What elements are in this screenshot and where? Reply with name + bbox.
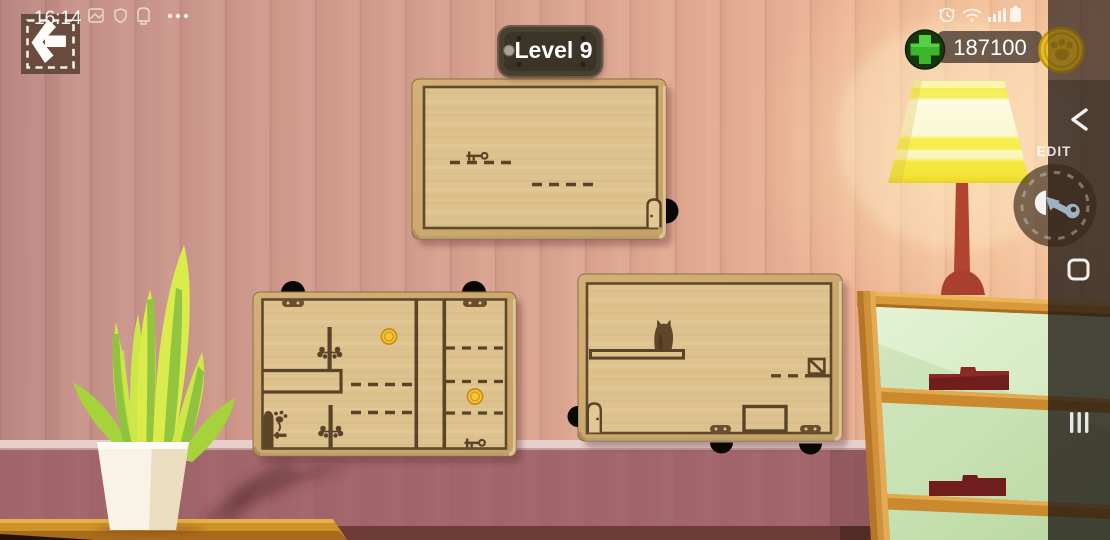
svg-text:16:14: 16:14 bbox=[34, 8, 82, 29]
svg-text:EDIT: EDIT bbox=[1037, 144, 1072, 159]
svg-text:187100: 187100 bbox=[953, 35, 1026, 60]
svg-text:Level 9: Level 9 bbox=[515, 37, 593, 63]
